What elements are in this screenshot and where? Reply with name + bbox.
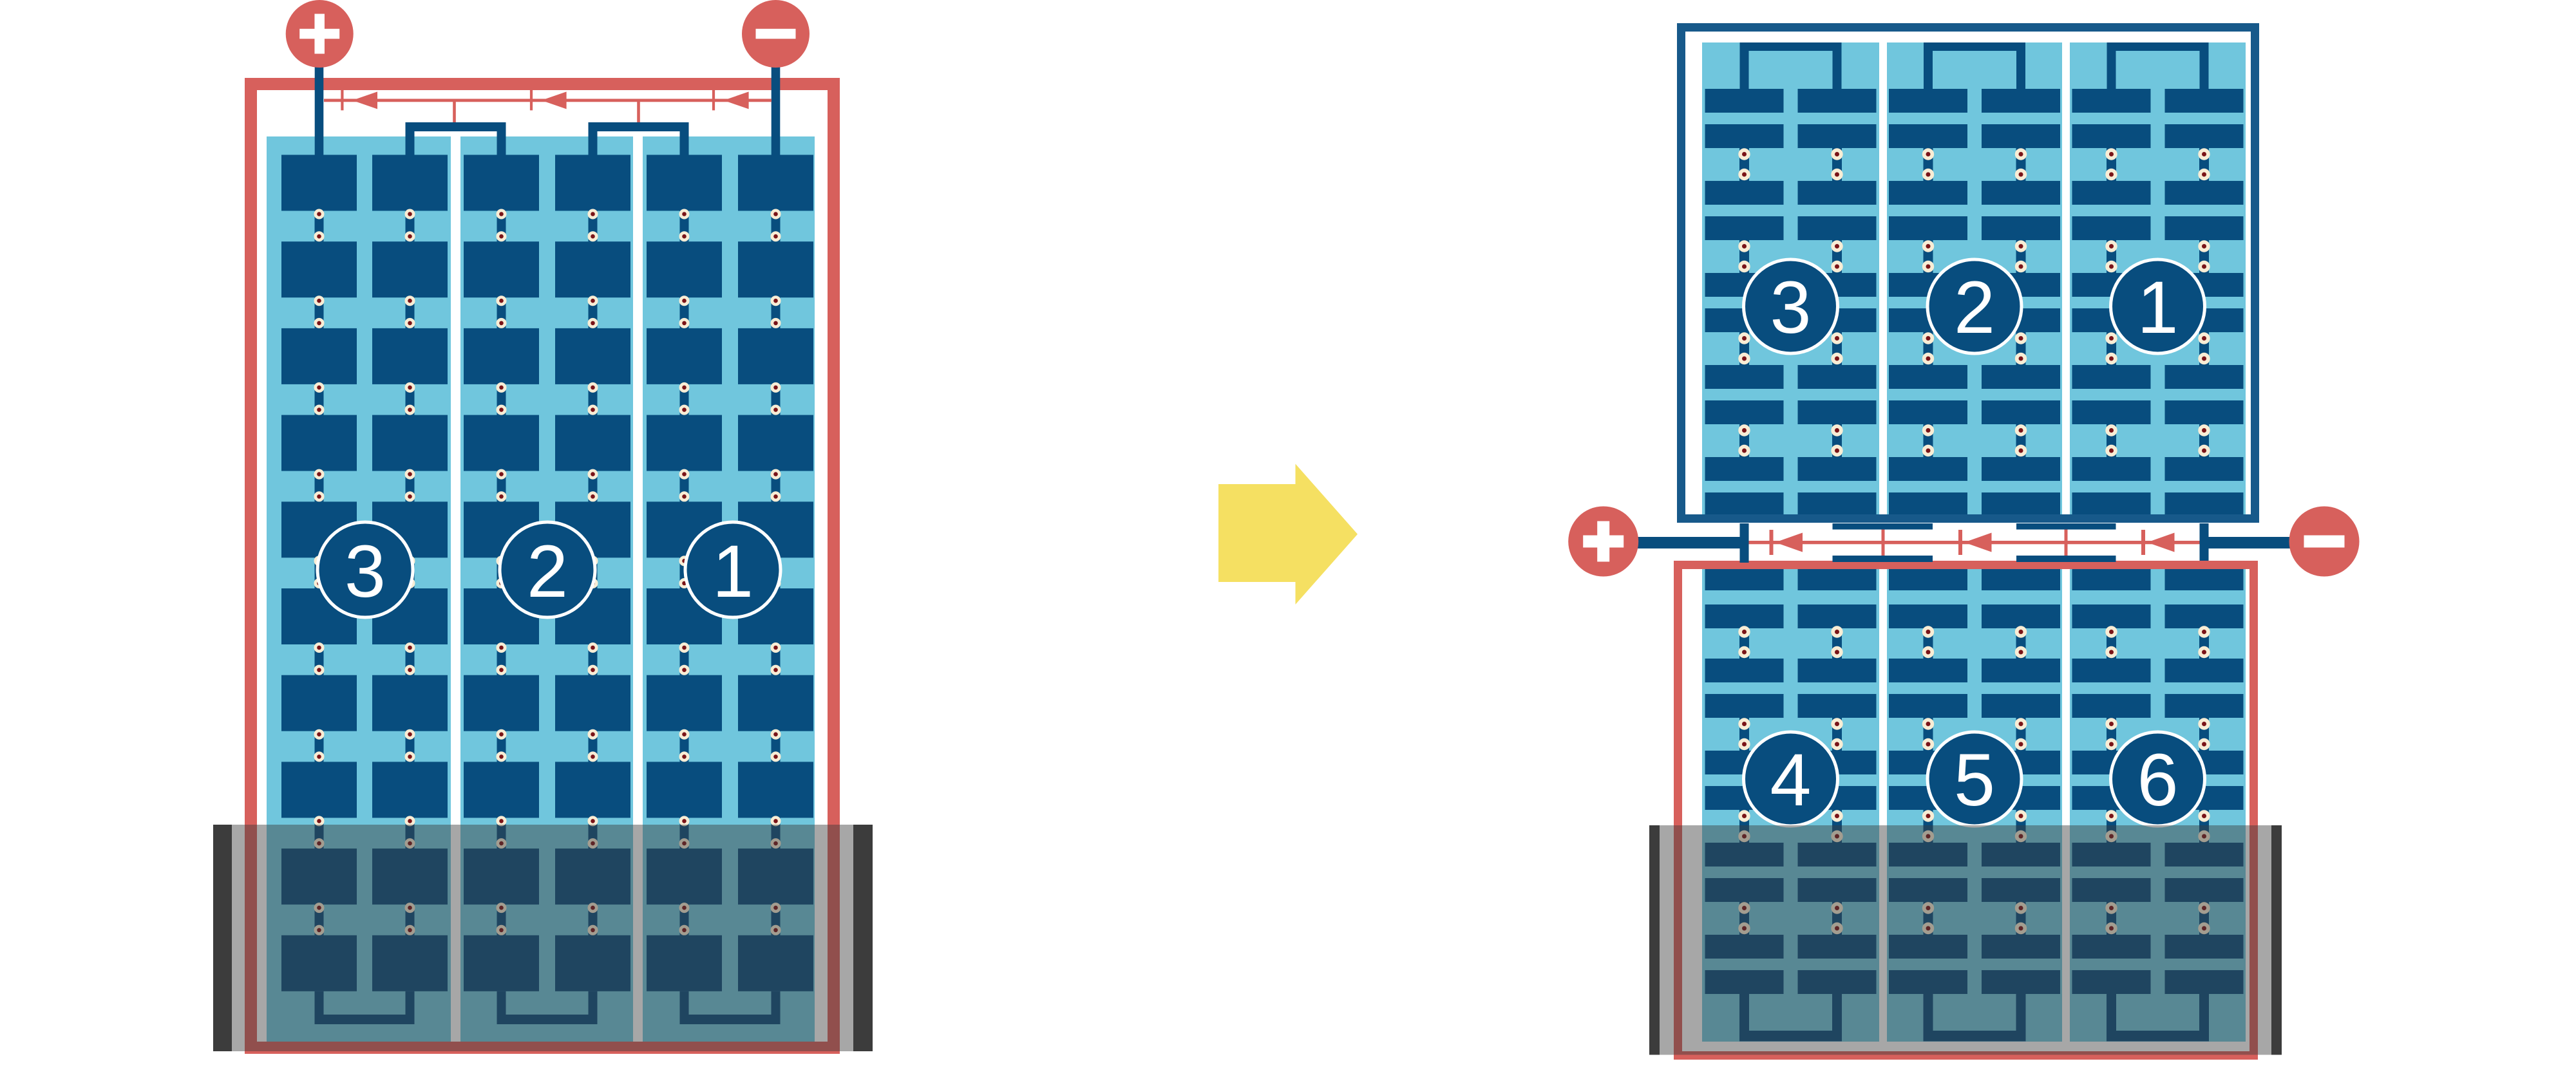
svg-text:1: 1 — [2137, 267, 2179, 349]
svg-text:3: 3 — [345, 530, 386, 613]
svg-text:6: 6 — [2137, 739, 2179, 821]
svg-text:3: 3 — [1770, 267, 1812, 349]
svg-text:5: 5 — [1954, 739, 1995, 821]
svg-text:1: 1 — [712, 530, 753, 613]
svg-text:4: 4 — [1770, 739, 1812, 821]
svg-text:2: 2 — [527, 530, 568, 613]
svg-text:2: 2 — [1954, 267, 1995, 349]
